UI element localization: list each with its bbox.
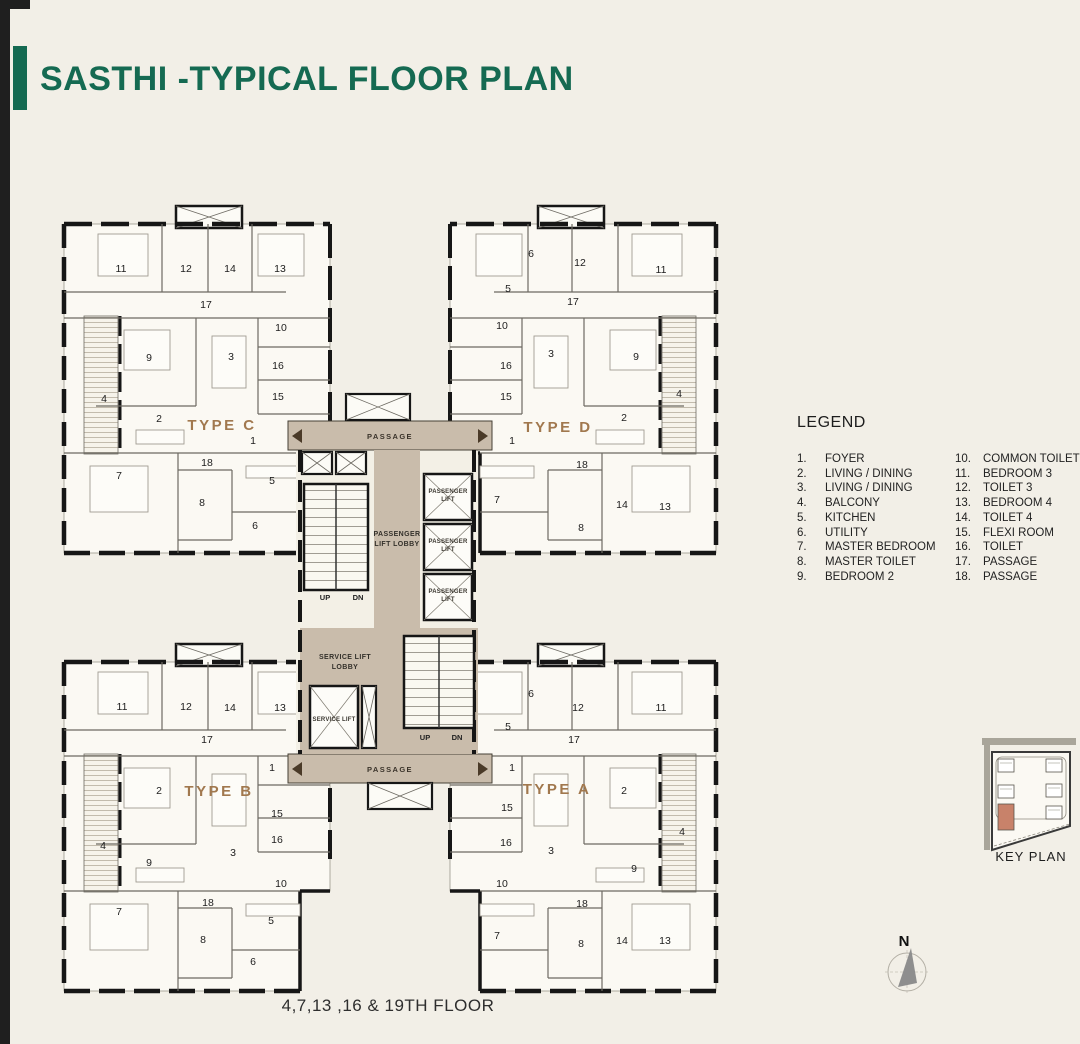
room-number-7: 7	[116, 906, 122, 918]
legend-item-label: BEDROOM 2	[825, 570, 894, 585]
room-number-9: 9	[146, 352, 152, 364]
legend-item: 3.LIVING / DINING	[797, 481, 955, 496]
legend-item: 6.UTILITY	[797, 526, 955, 541]
room-number-11: 11	[656, 264, 667, 276]
room-number-2: 2	[156, 785, 162, 797]
legend-item: 13.BEDROOM 4	[955, 496, 1080, 511]
room-number-3: 3	[548, 348, 554, 360]
legend-item: 14.TOILET 4	[955, 511, 1080, 526]
room-number-1: 1	[269, 762, 275, 774]
room-number-6: 6	[250, 956, 256, 968]
north-arrow: N	[885, 933, 929, 994]
room-number-1: 1	[509, 435, 515, 447]
legend-item-number: 17.	[955, 555, 983, 570]
core-label-passenger: PASSENGER	[373, 531, 420, 538]
core-label-up: UP	[320, 593, 330, 602]
room-number-7: 7	[494, 930, 500, 942]
legend-item-label: FOYER	[825, 452, 865, 467]
legend-item-number: 9.	[797, 570, 825, 585]
room-number-14: 14	[224, 702, 236, 714]
core-label-dn: DN	[452, 733, 463, 742]
core-label-passenger: PASSENGER	[428, 539, 467, 545]
core-label-passage: PASSAGE	[367, 432, 413, 441]
unit-label-type-c: TYPE C	[187, 417, 256, 434]
room-number-15: 15	[500, 391, 512, 403]
core	[288, 394, 492, 809]
room-number-16: 16	[500, 360, 512, 372]
legend-item: 5.KITCHEN	[797, 511, 955, 526]
legend-item-number: 11.	[955, 467, 983, 482]
legend-item-number: 1.	[797, 452, 825, 467]
legend-item-number: 15.	[955, 526, 983, 541]
core-label-lift: LIFT	[441, 497, 455, 503]
legend-item-number: 13.	[955, 496, 983, 511]
room-number-16: 16	[500, 837, 512, 849]
legend-item-label: TOILET 4	[983, 511, 1032, 526]
room-number-8: 8	[199, 497, 205, 509]
room-number-5: 5	[505, 721, 511, 733]
key-plan-highlighted-tower	[998, 804, 1014, 830]
room-number-4: 4	[101, 393, 107, 405]
room-number-2: 2	[621, 785, 627, 797]
room-number-2: 2	[621, 412, 627, 424]
room-number-5: 5	[268, 915, 274, 927]
legend-title: LEGEND	[797, 414, 1080, 432]
room-number-18: 18	[576, 459, 588, 471]
room-number-5: 5	[269, 475, 275, 487]
room-number-12: 12	[572, 702, 584, 714]
legend-item-label: BEDROOM 3	[983, 467, 1052, 482]
legend: LEGEND 1.FOYER2.LIVING / DINING3.LIVING …	[797, 414, 1080, 584]
core-label-passage: PASSAGE	[367, 765, 413, 774]
legend-column-1: 1.FOYER2.LIVING / DINING3.LIVING / DININ…	[797, 452, 955, 584]
room-number-13: 13	[659, 501, 671, 513]
legend-columns: 1.FOYER2.LIVING / DINING3.LIVING / DININ…	[797, 452, 1080, 584]
legend-item-number: 14.	[955, 511, 983, 526]
legend-item-label: TOILET 3	[983, 481, 1032, 496]
legend-item: 1.FOYER	[797, 452, 955, 467]
room-number-18: 18	[201, 457, 213, 469]
room-number-15: 15	[271, 808, 283, 820]
room-number-6: 6	[528, 248, 534, 260]
room-number-3: 3	[548, 845, 554, 857]
room-number-16: 16	[272, 360, 284, 372]
legend-item-number: 10.	[955, 452, 983, 467]
legend-item: 15.FLEXI ROOM	[955, 526, 1080, 541]
legend-item: 18.PASSAGE	[955, 570, 1080, 585]
legend-item: 16.TOILET	[955, 540, 1080, 555]
legend-item-label: COMMON TOILET	[983, 452, 1080, 467]
legend-item: 10.COMMON TOILET	[955, 452, 1080, 467]
legend-item-label: PASSAGE	[983, 555, 1037, 570]
legend-item: 8.MASTER TOILET	[797, 555, 955, 570]
room-number-11: 11	[116, 263, 127, 275]
legend-item-number: 16.	[955, 540, 983, 555]
room-number-10: 10	[496, 320, 508, 332]
legend-item: 7.MASTER BEDROOM	[797, 540, 955, 555]
core-label-up: UP	[420, 733, 430, 742]
room-number-7: 7	[116, 470, 122, 482]
legend-item: 2.LIVING / DINING	[797, 467, 955, 482]
room-number-8: 8	[578, 522, 584, 534]
key-plan: KEY PLAN	[982, 738, 1076, 864]
room-number-17: 17	[200, 299, 212, 311]
core-label-service-lift: SERVICE LIFT	[313, 717, 356, 723]
room-number-5: 5	[505, 283, 511, 295]
quadrant-type-b	[64, 644, 330, 991]
legend-item-label: PASSAGE	[983, 570, 1037, 585]
key-plan-label: KEY PLAN	[995, 849, 1066, 864]
unit-label-type-a: TYPE A	[523, 781, 592, 798]
room-number-3: 3	[230, 847, 236, 859]
quadrant-type-c	[64, 206, 330, 553]
core-label-passenger: PASSENGER	[428, 589, 467, 595]
room-number-15: 15	[501, 802, 513, 814]
room-number-9: 9	[633, 351, 639, 363]
legend-column-2: 10.COMMON TOILET11.BEDROOM 312.TOILET 31…	[955, 452, 1080, 584]
unit-label-type-b: TYPE B	[184, 783, 253, 800]
room-number-7: 7	[494, 494, 500, 506]
legend-item-number: 3.	[797, 481, 825, 496]
core-label-lift: LIFT	[441, 597, 455, 603]
core-label-passenger: PASSENGER	[428, 489, 467, 495]
room-number-18: 18	[576, 898, 588, 910]
room-number-8: 8	[578, 938, 584, 950]
floor-levels-note: 4,7,13 ,16 & 19TH FLOOR	[238, 996, 538, 1016]
legend-item-number: 6.	[797, 526, 825, 541]
legend-item-label: MASTER TOILET	[825, 555, 916, 570]
legend-item-label: BEDROOM 4	[983, 496, 1052, 511]
core-label-lift-lobby: LIFT LOBBY	[374, 541, 419, 548]
room-number-4: 4	[676, 388, 682, 400]
legend-item-number: 4.	[797, 496, 825, 511]
room-number-4: 4	[100, 840, 106, 852]
room-number-14: 14	[224, 263, 236, 275]
north-label: N	[899, 933, 910, 950]
room-number-10: 10	[496, 878, 508, 890]
legend-item: 4.BALCONY	[797, 496, 955, 511]
room-number-18: 18	[202, 897, 214, 909]
legend-item-number: 12.	[955, 481, 983, 496]
legend-item: 11.BEDROOM 3	[955, 467, 1080, 482]
room-number-4: 4	[679, 826, 685, 838]
room-number-1: 1	[509, 762, 515, 774]
room-number-9: 9	[146, 857, 152, 869]
floor-plan-page: { "title": "SASTHI -TYPICAL FLOOR PLAN",…	[0, 0, 1080, 1044]
core-label-lobby: LOBBY	[332, 664, 359, 671]
unit-label-type-d: TYPE D	[523, 419, 592, 436]
legend-item-number: 5.	[797, 511, 825, 526]
room-number-10: 10	[275, 878, 287, 890]
legend-item-label: LIVING / DINING	[825, 467, 913, 482]
room-number-10: 10	[275, 322, 287, 334]
room-number-17: 17	[567, 296, 579, 308]
legend-item-label: BALCONY	[825, 496, 880, 511]
legend-item: 12.TOILET 3	[955, 481, 1080, 496]
room-number-12: 12	[574, 257, 586, 269]
legend-item-label: FLEXI ROOM	[983, 526, 1054, 541]
room-number-1: 1	[250, 435, 256, 447]
room-number-12: 12	[180, 263, 192, 275]
staircase-top	[304, 484, 368, 590]
legend-item: 9.BEDROOM 2	[797, 570, 955, 585]
room-number-17: 17	[568, 734, 580, 746]
legend-item-label: MASTER BEDROOM	[825, 540, 936, 555]
staircase-bottom	[404, 636, 474, 728]
room-number-14: 14	[616, 935, 628, 947]
legend-item: 17.PASSAGE	[955, 555, 1080, 570]
legend-item-label: TOILET	[983, 540, 1023, 555]
room-number-11: 11	[656, 702, 667, 714]
room-number-13: 13	[274, 702, 286, 714]
room-number-16: 16	[271, 834, 283, 846]
room-number-6: 6	[528, 688, 534, 700]
core-label-lift: LIFT	[441, 547, 455, 553]
legend-item-label: LIVING / DINING	[825, 481, 913, 496]
room-number-13: 13	[659, 935, 671, 947]
room-number-6: 6	[252, 520, 258, 532]
legend-item-number: 18.	[955, 570, 983, 585]
legend-item-number: 8.	[797, 555, 825, 570]
room-number-8: 8	[200, 934, 206, 946]
legend-item-label: UTILITY	[825, 526, 868, 541]
room-number-11: 11	[117, 701, 128, 713]
legend-item-number: 7.	[797, 540, 825, 555]
room-number-12: 12	[180, 701, 192, 713]
core-label-service-lift: SERVICE LIFT	[319, 654, 371, 661]
room-number-14: 14	[616, 499, 628, 511]
core-label-dn: DN	[353, 593, 364, 602]
legend-item-number: 2.	[797, 467, 825, 482]
room-number-15: 15	[272, 391, 284, 403]
room-number-9: 9	[631, 863, 637, 875]
legend-item-label: KITCHEN	[825, 511, 875, 526]
room-number-13: 13	[274, 263, 286, 275]
room-number-3: 3	[228, 351, 234, 363]
room-number-17: 17	[201, 734, 213, 746]
room-number-2: 2	[156, 413, 162, 425]
